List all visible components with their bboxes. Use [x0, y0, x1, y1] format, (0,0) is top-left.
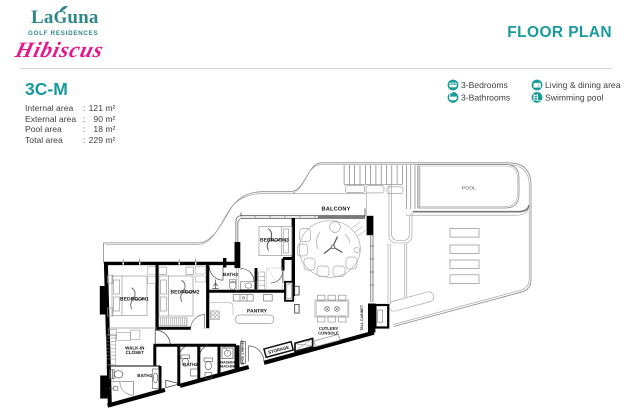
svg-text:PANTRY: PANTRY	[247, 308, 268, 314]
svg-text:BEDROOM1: BEDROOM1	[120, 297, 149, 303]
svg-text:BEDROOM3: BEDROOM3	[260, 238, 289, 244]
svg-text:SHOE CABINET: SHOE CABINET	[240, 340, 244, 365]
svg-text:POOL: POOL	[462, 186, 476, 191]
svg-text:MACHINE: MACHINE	[220, 364, 237, 368]
svg-text:TALL CABINET: TALL CABINET	[360, 304, 364, 331]
svg-text:BALCONY: BALCONY	[321, 207, 350, 213]
svg-text:BATH1: BATH1	[137, 373, 152, 378]
svg-text:CLOSET: CLOSET	[126, 350, 145, 355]
svg-text:BATH3: BATH3	[223, 272, 238, 277]
svg-text:BEDROOM2: BEDROOM2	[171, 289, 200, 295]
